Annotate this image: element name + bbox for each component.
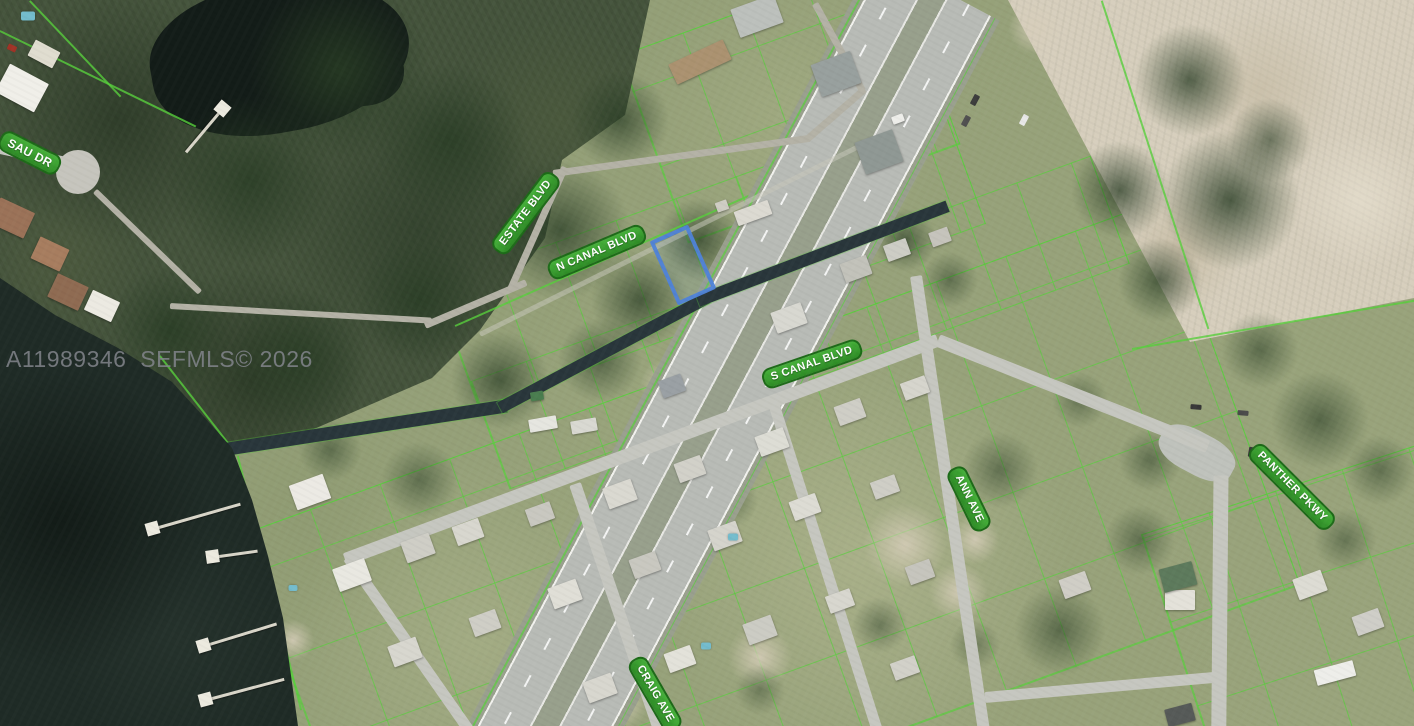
aerial-parcel-map[interactable]: SAU DR ESTATE BLVD N CANAL BLVD S CANAL … <box>0 0 1414 726</box>
mls-watermark: A11989346 SEFMLS© 2026 <box>6 346 313 373</box>
